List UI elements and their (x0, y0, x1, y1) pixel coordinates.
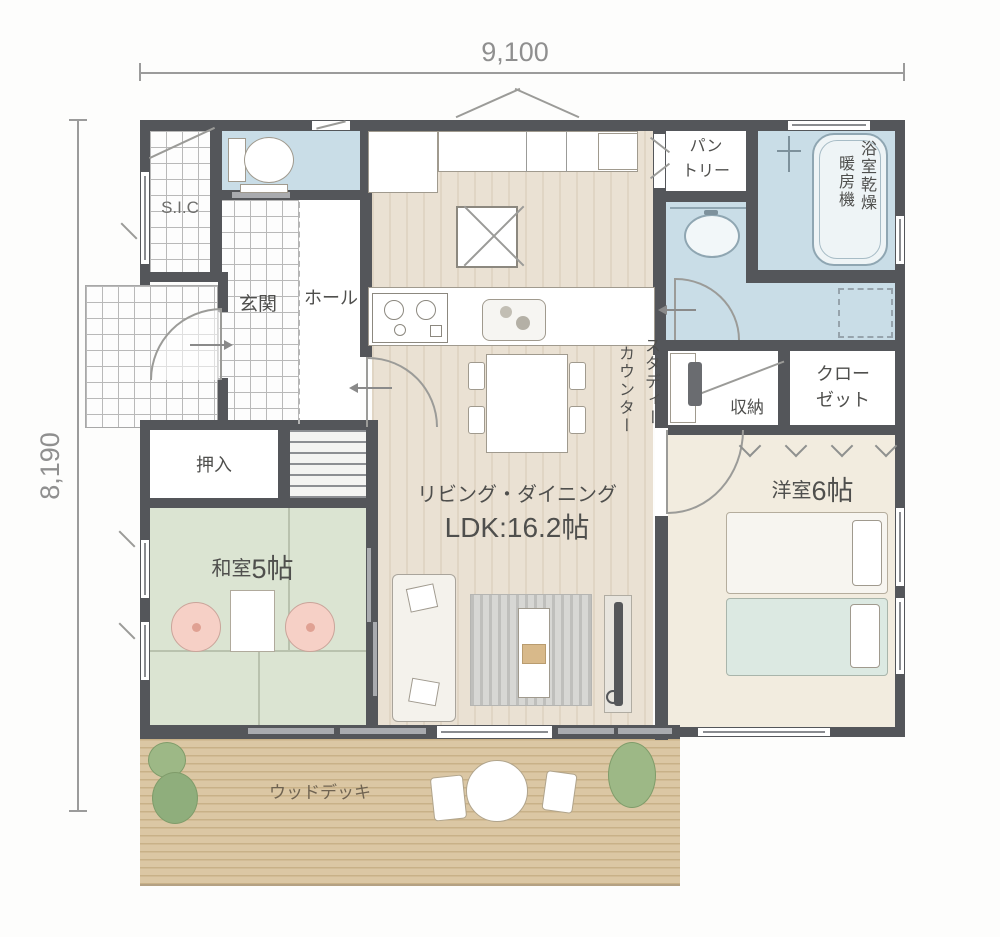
oshiire-label: 押入 (178, 452, 250, 476)
youshitsu-label: 洋室6帖 (730, 473, 895, 503)
washroom-arrow-head (658, 305, 667, 315)
washroom-faucet (704, 210, 718, 215)
top-dimension-label: 9,100 (430, 36, 600, 68)
bed-2-pillow (850, 604, 880, 668)
genkan-label: 玄関 (222, 290, 294, 314)
sic-label: S.I.C (150, 197, 210, 219)
hall-arrow-head (349, 383, 358, 393)
deck-chair-2 (541, 770, 577, 814)
wall-sic-bottom (140, 272, 228, 282)
washitsu-deck-sliding-2 (340, 728, 426, 734)
wall-washroom-bottom (653, 340, 905, 351)
toilet-bowl (244, 137, 294, 183)
wall-pantry-bottom (666, 191, 748, 202)
shower-fixture-pole (788, 136, 790, 172)
washitsu-ldk-sliding-door (367, 548, 371, 622)
hall-arrow (358, 387, 392, 389)
left-dimension-label: 8,190 (34, 381, 66, 551)
washitsu-deck-sliding-1 (248, 728, 334, 734)
hall-ldk-door-leaf (366, 357, 368, 427)
top-dimension-tick-left (139, 63, 141, 81)
washitsu-ldk-sliding-door-2 (373, 622, 377, 696)
washitsu-label-prefix: 和室 (211, 552, 251, 581)
stove-burner-2 (416, 300, 436, 320)
stove-burner-3 (394, 324, 406, 336)
table-tray (522, 644, 546, 664)
stove-burner-1 (384, 300, 404, 320)
zabuton-cushion-1-center (192, 623, 201, 632)
bath-dryer-label-line2: 暖房機 (834, 155, 856, 255)
closet-label-line1: クロー (798, 362, 888, 384)
top-dimension-line (140, 72, 905, 74)
closet-label-line2: ゼット (798, 388, 888, 410)
dining-chair-2 (468, 406, 485, 434)
washitsu-label: 和室5帖 (170, 550, 335, 582)
youshitsu-label-size: 6帖 (811, 469, 853, 508)
corner-tick-3 (119, 623, 136, 640)
ldk-deck-sliding-1 (558, 728, 614, 734)
top-dimension-tick-right (903, 63, 905, 81)
wood-deck-label: ウッドデッキ (250, 778, 390, 802)
tatami-line-vertical-bottom (258, 652, 260, 725)
washitsu-label-size: 5帖 (251, 547, 293, 586)
washroom-sink (684, 214, 740, 258)
window-bath-right-line (899, 219, 901, 261)
sink-item-1 (500, 306, 512, 318)
study-counter-chair (688, 362, 702, 406)
wood-deck-floor (140, 739, 680, 886)
kitchen-counter-divider-2 (566, 131, 567, 172)
corner-tick-2 (119, 531, 136, 548)
window-bedroom-right-2-line (899, 602, 901, 670)
window-sic-left-line (144, 176, 146, 260)
window-washitsu-left-1-line (144, 543, 146, 595)
window-ldk-bottom-line (441, 731, 548, 733)
bath-dryer-label-line1: 浴室乾燥 (856, 140, 878, 265)
gable-line-right (515, 88, 580, 118)
dining-chair-1 (468, 362, 485, 390)
ldk-deck-sliding-2 (618, 728, 672, 734)
floor-plan: 9,100 8,190 (0, 0, 1000, 937)
pantry-label-line1: パン (666, 133, 746, 155)
deck-chair-1 (430, 774, 467, 821)
dining-chair-3 (569, 362, 586, 390)
corner-tick-1 (121, 223, 138, 240)
ldk-label-line1: リビング・ダイニング (392, 479, 642, 505)
hall-label: ホール (296, 285, 366, 309)
deck-plant-left-2 (152, 772, 198, 824)
zabuton-cushion-2-center (306, 623, 315, 632)
gable-line-left (456, 88, 521, 118)
youshitsu-label-prefix: 洋室 (771, 474, 811, 503)
toilet-base (240, 184, 288, 193)
study-counter-label-line1: スタディー (640, 337, 662, 462)
window-washitsu-left-2-line (144, 625, 146, 677)
entrance-arrow (190, 344, 224, 346)
window-bedroom-bottom-line (703, 731, 825, 733)
deck-table (466, 760, 528, 822)
refrigerator (598, 133, 638, 170)
entrance-arrow-head (224, 340, 233, 350)
kitchen-island (456, 206, 518, 268)
kitchen-sink (482, 299, 546, 341)
sofa-pillow-2 (408, 678, 440, 706)
left-dimension-tick-top (69, 119, 87, 121)
sink-item-2 (516, 316, 530, 330)
wall-bath-west (746, 120, 758, 283)
dining-table (486, 354, 568, 453)
ldk-label-line2: LDK:16.2帖 (392, 509, 642, 543)
deck-plant-right (608, 742, 656, 808)
stove-grill (430, 325, 442, 337)
dining-chair-4 (569, 406, 586, 434)
shower-fixture-bar (777, 150, 801, 152)
washroom-arrow (666, 309, 696, 311)
left-dimension-tick-bottom (69, 810, 87, 812)
study-counter-label-line2: カウンター (614, 345, 636, 470)
washer-space-dashed (838, 288, 893, 338)
kitchen-wall-cabinet-left (368, 131, 438, 193)
wall-bath-bottom (746, 270, 905, 283)
bedroom-door-leaf (666, 430, 668, 514)
staircase (290, 430, 366, 508)
window-bath-top-line (792, 124, 866, 126)
genkan-hall-divider (298, 202, 300, 424)
wall-stairs-left (278, 430, 290, 508)
washitsu-low-table (230, 590, 275, 652)
wall-oshiire-top (140, 420, 378, 430)
storage-label: 収納 (712, 394, 782, 416)
kitchen-counter-divider-1 (526, 131, 527, 172)
bed-1-pillow (852, 520, 882, 586)
pantry-label-line2: トリー (666, 158, 746, 180)
tv-speaker (606, 690, 620, 704)
washroom-counter-line (670, 207, 746, 209)
left-dimension-line (77, 120, 79, 812)
window-bedroom-right-1-line (899, 512, 901, 582)
wall-oshiire-bottom (140, 498, 378, 508)
